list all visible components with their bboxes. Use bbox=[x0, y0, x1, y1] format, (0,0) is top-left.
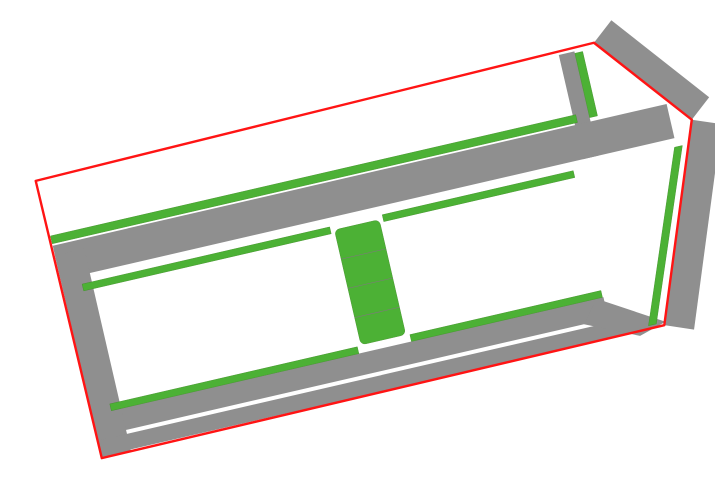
subdivision-plan-svg bbox=[0, 0, 715, 483]
site-plan-canvas bbox=[0, 0, 715, 483]
